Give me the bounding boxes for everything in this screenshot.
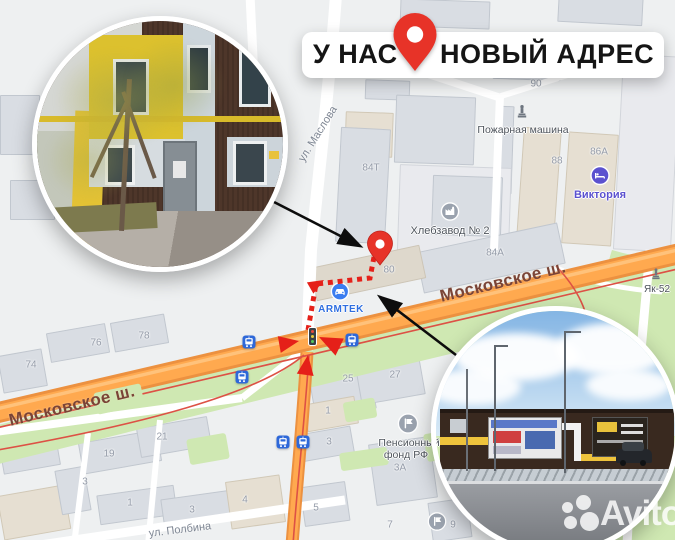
window (233, 141, 267, 185)
billboard (488, 417, 562, 459)
map[interactable]: ул. Маслова Московское ш. Московское ш. … (0, 0, 675, 540)
route-path (308, 257, 374, 330)
lamp-post (564, 331, 566, 473)
black-arrow-1 (274, 202, 360, 246)
banner-text-right: НОВЫЙ АДРЕС (440, 39, 654, 70)
avito-watermark-text: Avito (600, 494, 675, 534)
lamp-post (494, 345, 496, 471)
banner-pin-icon (389, 12, 441, 74)
traffic-light-icon (308, 327, 317, 346)
entrance-door (163, 141, 197, 213)
banner-text-left: У НАС (313, 39, 398, 70)
photo-inset-top-left (32, 16, 288, 272)
new-address-banner: У НАС НОВЫЙ АДРЕС (302, 32, 664, 78)
route-arrows (278, 274, 344, 376)
window (239, 49, 271, 107)
